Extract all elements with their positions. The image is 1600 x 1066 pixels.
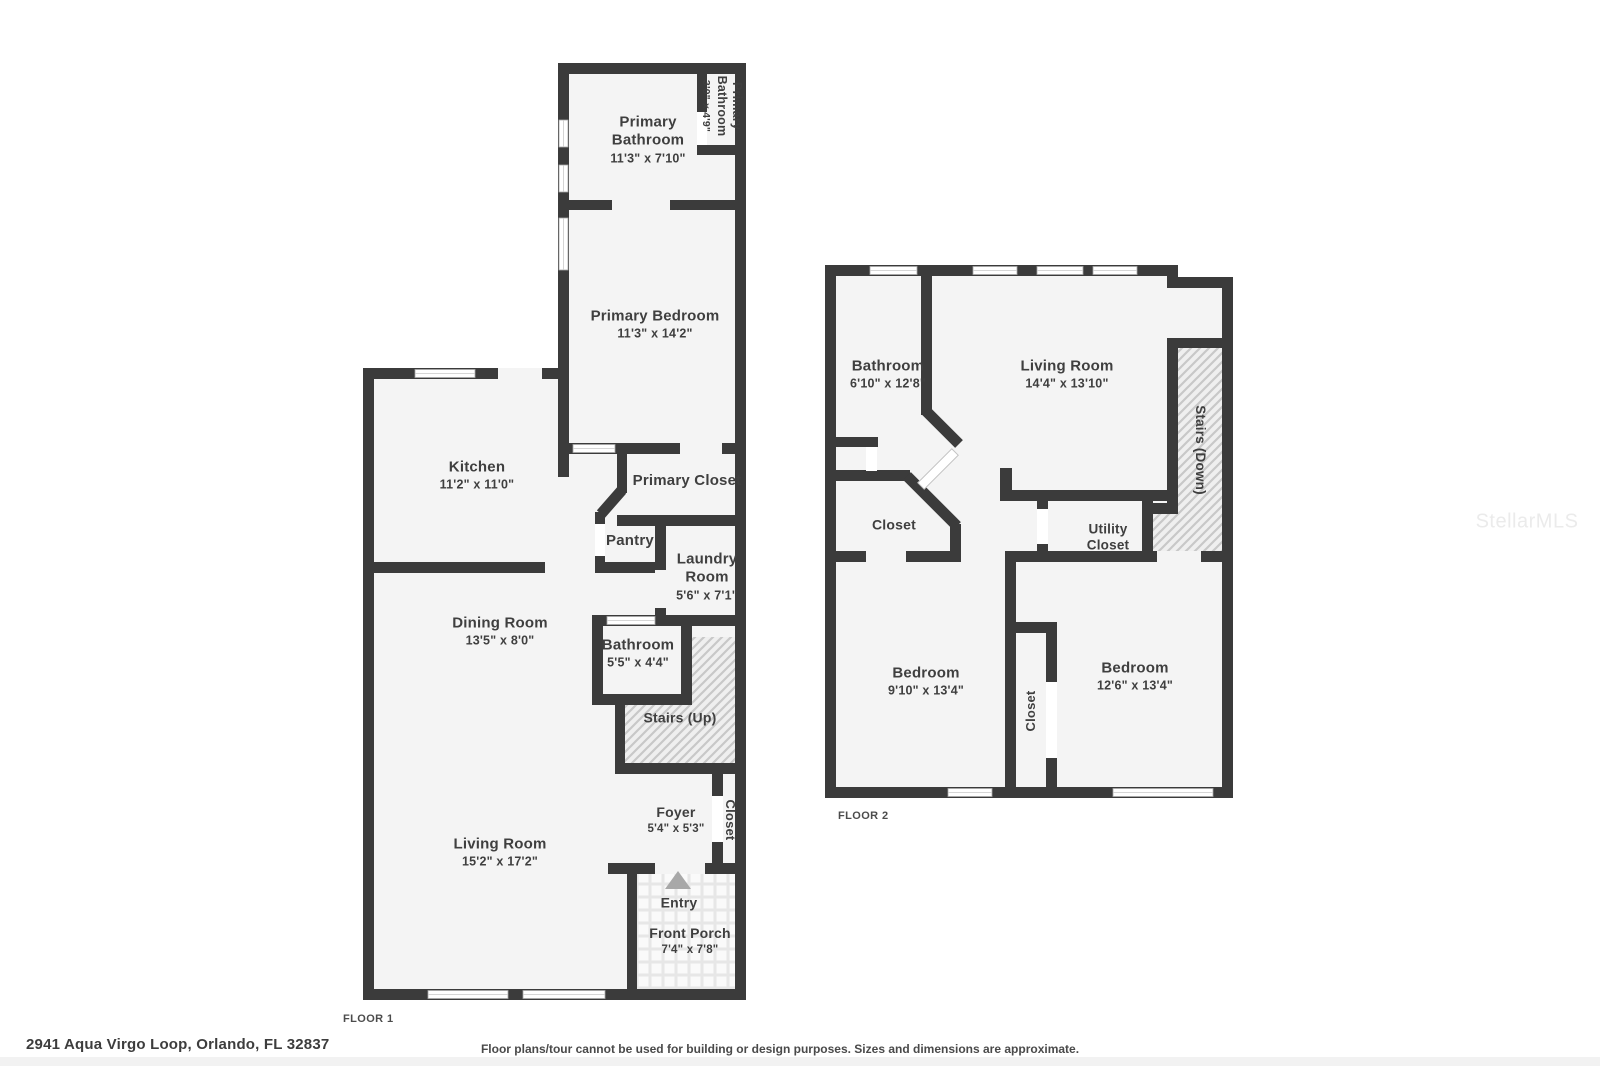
bottom-strip — [0, 1057, 1600, 1066]
room-label-bedroom-closet: Closet — [1023, 691, 1039, 732]
room-label-stairs-down: Stairs (Down) — [1192, 405, 1208, 495]
floor1-tag: FLOOR 1 — [343, 1013, 393, 1025]
room-label-bedroom-right: Bedroom 12'6" x 13'4" — [1097, 660, 1173, 695]
room-label-kitchen: Kitchen 11'2" x 11'0" — [440, 459, 515, 494]
room-label-living-f1: Living Room 15'2" x 17'2" — [453, 836, 546, 871]
room-label-bedroom-left: Bedroom 9'10" x 13'4" — [888, 665, 964, 700]
property-address: 2941 Aqua Virgo Loop, Orlando, FL 32837 — [26, 1036, 329, 1053]
floor2-tag: FLOOR 2 — [838, 810, 888, 822]
disclaimer-text: Floor plans/tour cannot be used for buil… — [481, 1042, 1079, 1056]
room-label-primary-bathroom-small: Primary Bathroom 3'0" x 4'9" — [700, 71, 744, 141]
stellar-mls-watermark: StellarMLS — [1476, 511, 1579, 534]
room-label-pantry: Pantry — [606, 532, 654, 550]
room-label-front-porch: Front Porch 7'4" x 7'8" — [649, 925, 731, 957]
room-label-stairs-up: Stairs (Up) — [644, 709, 717, 726]
room-label-laundry: Laundry Room 5'6" x 7'1" — [671, 551, 743, 604]
room-label-bathroom-f2: Bathroom 6'10" x 12'8" — [850, 358, 926, 393]
room-label-primary-bathroom: Primary Bathroom 11'3" x 7'10" — [602, 114, 694, 167]
room-label-entry: Entry — [661, 894, 698, 911]
room-label-bathroom-f1: Bathroom 5'5" x 4'4" — [602, 637, 674, 672]
room-label-living-f2: Living Room 14'4" x 13'10" — [1020, 358, 1113, 393]
room-label-foyer: Foyer 5'4" x 5'3" — [648, 804, 705, 836]
room-label-primary-closet: Primary Closet — [633, 472, 742, 490]
floorplan-drawing — [0, 0, 1600, 1066]
room-label-closet-f2: Closet — [872, 516, 916, 533]
room-label-closet-f1: Closet — [722, 800, 738, 841]
room-label-utility-closet: Utility Closet — [1076, 522, 1140, 555]
room-label-primary-bedroom: Primary Bedroom 11'3" x 14'2" — [591, 308, 720, 343]
room-label-dining: Dining Room 13'5" x 8'0" — [452, 615, 548, 650]
floorplan-page: Primary Bathroom 11'3" x 7'10" Primary B… — [0, 0, 1600, 1066]
